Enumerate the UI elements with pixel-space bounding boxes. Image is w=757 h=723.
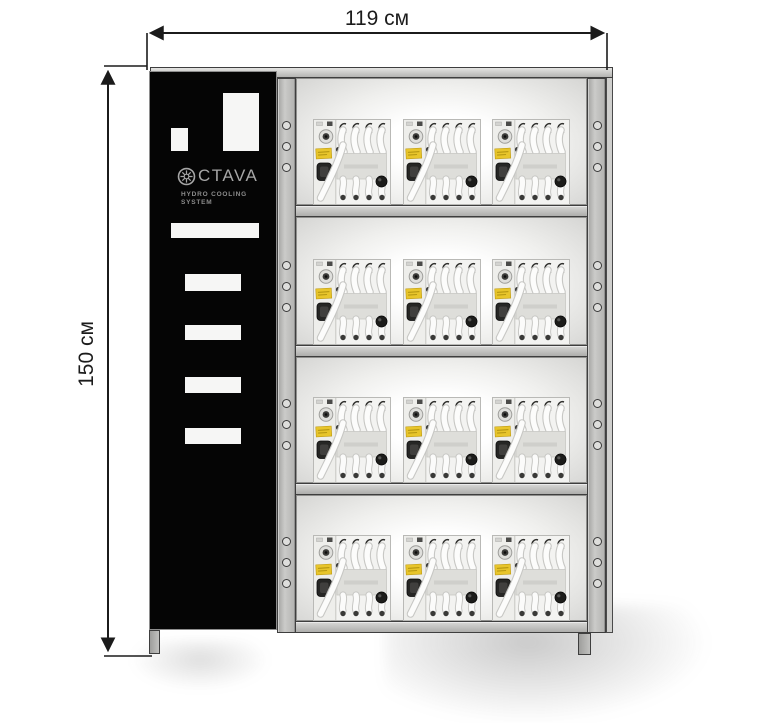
mounting-hole: [593, 282, 602, 291]
mounting-hole: [282, 282, 291, 291]
mounting-hole: [593, 420, 602, 429]
rack-side-panel: [606, 67, 613, 633]
panel-vent-slot: [185, 325, 241, 340]
panel-vent-slot: [185, 428, 241, 444]
hydro-cooling-module: [403, 535, 481, 621]
mounting-hole: [282, 399, 291, 408]
rack-post-right: [587, 78, 606, 633]
cooling-rack: [0, 0, 757, 723]
mounting-hole: [593, 558, 602, 567]
subtitle-line-1: HYDRO COOLING: [181, 191, 247, 199]
mounting-hole: [282, 579, 291, 588]
mounting-hole: [593, 121, 602, 130]
height-dimension-label: 150 см: [75, 293, 99, 415]
mounting-hole: [593, 261, 602, 270]
panel-cutout-small: [171, 128, 188, 151]
mounting-hole: [593, 142, 602, 151]
mounting-hole: [282, 537, 291, 546]
front-panel: CTAVA HYDRO COOLING SYSTEM: [149, 71, 277, 630]
hydro-cooling-module: [492, 535, 570, 621]
panel-cutout-large: [223, 93, 259, 151]
hydro-cooling-module: [492, 397, 570, 483]
mounting-hole: [282, 303, 291, 312]
gear-icon: [177, 167, 196, 186]
mounting-hole: [593, 163, 602, 172]
mounting-hole: [282, 420, 291, 429]
hydro-cooling-module: [403, 397, 481, 483]
octava-logo: CTAVA: [177, 166, 258, 186]
rack-leg-left: [149, 630, 160, 654]
panel-vent-slot: [185, 274, 241, 291]
mounting-hole: [593, 537, 602, 546]
mounting-hole: [593, 303, 602, 312]
hydro-cooling-module: [492, 259, 570, 345]
logo-text: CTAVA: [198, 166, 258, 186]
hydro-cooling-module: [403, 119, 481, 205]
hydro-cooling-module: [313, 397, 391, 483]
shelf-rail-2: [277, 345, 606, 357]
logo-subtitle: HYDRO COOLING SYSTEM: [181, 191, 247, 207]
mounting-hole: [282, 163, 291, 172]
hydro-cooling-module: [313, 259, 391, 345]
width-dimension-label: 119 см: [300, 7, 454, 31]
hydro-cooling-module: [492, 119, 570, 205]
mounting-hole: [282, 121, 291, 130]
panel-vent-slot: [171, 223, 259, 238]
bottom-rail: [277, 621, 606, 633]
product-dimension-diagram: CTAVA HYDRO COOLING SYSTEM 119 см 150 см: [0, 0, 757, 723]
shelf-rail-1: [277, 205, 606, 217]
mounting-hole: [282, 558, 291, 567]
mounting-hole: [282, 261, 291, 270]
mounting-hole: [593, 579, 602, 588]
mounting-hole: [282, 142, 291, 151]
panel-vent-slot: [185, 377, 241, 393]
rack-leg-right: [578, 633, 591, 655]
hydro-cooling-module: [313, 119, 391, 205]
shelf-rail-3: [277, 483, 606, 495]
mounting-hole: [593, 399, 602, 408]
mounting-hole: [282, 441, 291, 450]
subtitle-line-2: SYSTEM: [181, 199, 247, 207]
hydro-cooling-module: [313, 535, 391, 621]
hydro-cooling-module: [403, 259, 481, 345]
rack-post-left: [277, 78, 296, 633]
mounting-hole: [593, 441, 602, 450]
